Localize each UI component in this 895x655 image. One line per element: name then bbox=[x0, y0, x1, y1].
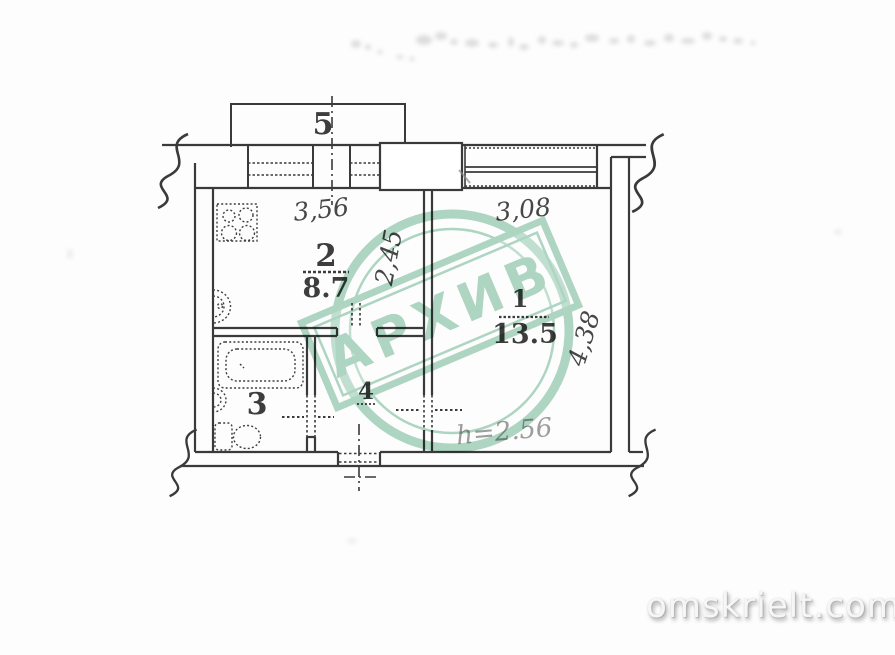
room-label-kitchen: 2 bbox=[315, 238, 337, 274]
room-label-bathroom: 3 bbox=[247, 387, 268, 422]
balcony-window-2 bbox=[350, 145, 380, 188]
balcony-door-block bbox=[380, 143, 462, 190]
dimension-kitchen-width: 3,56 bbox=[292, 192, 350, 227]
stove-icon bbox=[217, 204, 257, 241]
floor-plan: 5 2 8.7 1 13.5 3 4 3,56 2,45 3,08 4,38 h… bbox=[0, 0, 895, 655]
kitchen-sink-icon bbox=[213, 290, 231, 323]
bathtub-icon bbox=[218, 342, 303, 388]
room-label-balcony: 5 bbox=[313, 107, 334, 142]
living-room-window bbox=[465, 145, 597, 188]
floor-plan-svg: 5 2 8.7 1 13.5 3 4 3,56 2,45 3,08 4,38 h… bbox=[0, 0, 895, 655]
toilet-icon bbox=[215, 423, 261, 450]
washbasin-icon bbox=[213, 388, 226, 412]
kitchen-balcony-window bbox=[248, 145, 313, 188]
site-watermark: omskrielt.com bbox=[646, 586, 895, 626]
scanned-floorplan-page: 5 2 8.7 1 13.5 3 4 3,56 2,45 3,08 4,38 h… bbox=[0, 0, 895, 655]
